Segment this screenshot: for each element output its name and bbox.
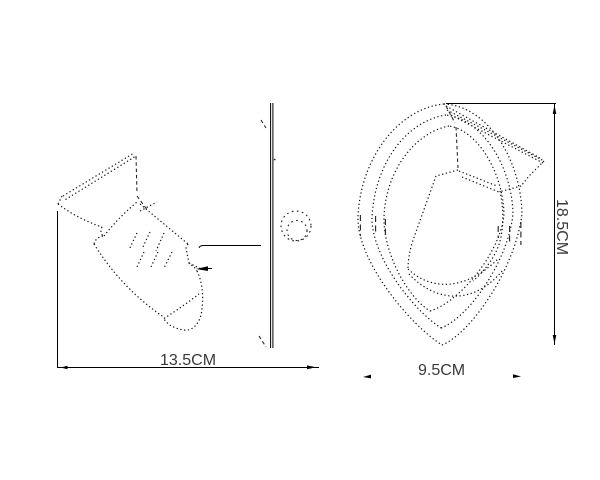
svg-text:9.5CM: 9.5CM [418, 362, 465, 379]
svg-text:13.5CM: 13.5CM [160, 352, 216, 369]
svg-text:18.5CM: 18.5CM [553, 199, 570, 255]
